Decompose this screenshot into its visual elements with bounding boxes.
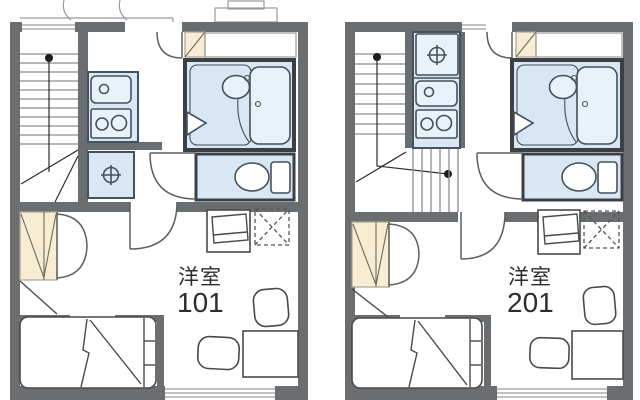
bathroom-201	[512, 60, 622, 150]
stair-direction-dot	[444, 170, 452, 178]
entrance-101	[157, 32, 296, 58]
room-door-101	[130, 202, 177, 249]
toilet-door-swing-icon	[477, 153, 523, 199]
entrance-door-swing-icon	[487, 32, 512, 58]
chair	[582, 286, 616, 326]
bed-101	[20, 317, 156, 388]
floor-plan-canvas: 洋室 101	[0, 0, 640, 400]
toilet-201	[477, 153, 622, 200]
bed-nook-wall	[484, 315, 491, 390]
desk	[572, 331, 623, 379]
room-door-swing-icon	[461, 212, 505, 259]
bathroom-101	[185, 60, 294, 150]
stair-partition-wall	[78, 32, 88, 202]
room-number-label: 201	[507, 287, 554, 318]
room-door-swing-icon	[130, 202, 177, 249]
wash-basin	[550, 76, 577, 99]
room-type-label: 洋室	[508, 266, 552, 289]
toilet-door-swing-icon	[150, 153, 196, 199]
room-label-101: 洋室 101	[177, 266, 224, 318]
under-stair-slope-line	[20, 281, 57, 314]
closet-door-swing-icon	[57, 214, 87, 246]
entrance-door-swing-icon	[157, 32, 182, 58]
kitchen-101	[88, 72, 138, 142]
stair-cut-line	[55, 156, 78, 202]
storage-counter	[536, 33, 622, 57]
entrance-201	[487, 32, 622, 58]
closet-icon	[352, 222, 389, 287]
toilet-101	[150, 153, 294, 200]
stair-cut-line	[356, 152, 406, 182]
wash-basin	[223, 76, 250, 99]
under-stair-slope-line	[352, 289, 388, 317]
unit-201-plan: 洋室 201	[345, 22, 633, 400]
room-number-label: 101	[177, 287, 224, 318]
floor-plan-page: 洋室 101	[0, 0, 640, 400]
chair	[252, 288, 289, 328]
exterior-door-swing-icon	[63, 0, 71, 20]
closet-101	[20, 212, 87, 314]
exterior-outline-101	[20, 0, 277, 22]
stair-partition-wall	[405, 32, 413, 145]
bed-nook-wall	[157, 315, 164, 390]
desk	[243, 331, 298, 377]
exterior-door-swing-icon	[119, 0, 127, 20]
closet-icon	[20, 212, 57, 280]
closet-door-swing-icon	[389, 224, 419, 254]
toilet-icon	[235, 163, 269, 191]
kitchen-sink	[91, 76, 131, 103]
storage-counter	[205, 33, 296, 57]
unit-101-plan: 洋室 101	[10, 0, 308, 400]
chair	[529, 337, 569, 368]
room-type-label: 洋室	[178, 266, 222, 289]
kitchen-sink	[416, 81, 457, 106]
bed-201	[352, 318, 482, 388]
closet-door-swing-icon	[57, 246, 87, 278]
room-label-201: 洋室 201	[507, 266, 554, 318]
closet-201	[352, 222, 419, 317]
toilet-tank	[271, 162, 290, 193]
closet-door-swing-icon	[389, 254, 419, 285]
entrance-canopy	[215, 8, 277, 22]
staircase-101	[20, 54, 78, 202]
kitchen-201	[413, 32, 460, 148]
chair	[197, 336, 240, 370]
washing-machine-space-101	[88, 152, 134, 198]
toilet-tank	[598, 162, 617, 193]
toilet-icon	[562, 163, 596, 191]
room-door-201	[461, 212, 505, 259]
